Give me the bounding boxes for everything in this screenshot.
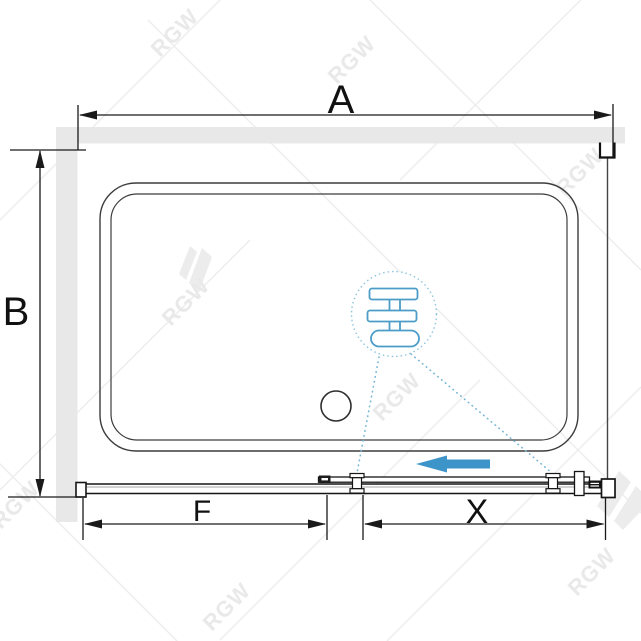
wall-top — [56, 127, 625, 144]
roller-right — [546, 474, 560, 494]
watermark-layer: RGW RGW RGW RGW RGW RGW RGW RGW — [0, 0, 641, 641]
bottom-rail — [85, 484, 603, 494]
wall-profile-left — [76, 483, 86, 498]
dim-b-label: B — [3, 290, 30, 334]
door-stopper — [575, 472, 585, 496]
door-guide-clamp-slot — [322, 478, 329, 480]
magnet-strip — [589, 481, 602, 489]
watermark-brand-texts: RGW RGW RGW RGW RGW RGW RGW RGW — [0, 4, 621, 636]
watermark-text: RGW — [198, 578, 256, 636]
magnet-strip-mark — [591, 483, 600, 484]
dim-x-label: X — [466, 493, 489, 531]
watermark-text: RGW — [146, 4, 204, 62]
dim-a-arrow-left-icon — [79, 111, 97, 120]
dim-x-arrow-left-icon — [364, 520, 382, 529]
roller-assembly-detail-icon — [368, 289, 420, 347]
watermark-diagonal-lines — [0, 0, 641, 641]
dim-f-label: F — [193, 495, 211, 528]
dim-x-arrow-right-icon — [587, 520, 605, 529]
leader-to-right-roller — [411, 354, 552, 473]
wall-profile-top-right — [600, 143, 615, 158]
dim-f-arrow-left-icon — [84, 520, 102, 529]
drain-icon — [321, 391, 351, 421]
diagram-canvas: RGW RGW RGW RGW RGW RGW RGW RGW — [0, 0, 641, 641]
magnet-strip-mark — [591, 485, 600, 486]
shower-enclosure-diagram: RGW RGW RGW RGW RGW RGW RGW RGW — [0, 0, 641, 641]
dim-b-arrow-top-icon — [36, 150, 45, 168]
wall-profile-right — [602, 479, 616, 498]
front-assembly — [76, 472, 615, 498]
dim-f-arrow-right-icon — [308, 520, 326, 529]
dim-a-label: A — [328, 78, 355, 122]
watermark-text: RGW — [157, 273, 215, 331]
dim-a-arrow-right-icon — [594, 111, 612, 120]
roller-left — [350, 474, 364, 494]
watermark-text: RGW — [368, 368, 426, 426]
slide-direction-arrow-icon — [416, 456, 490, 473]
watermark-text: RGW — [563, 543, 621, 601]
wall-left — [56, 127, 78, 522]
